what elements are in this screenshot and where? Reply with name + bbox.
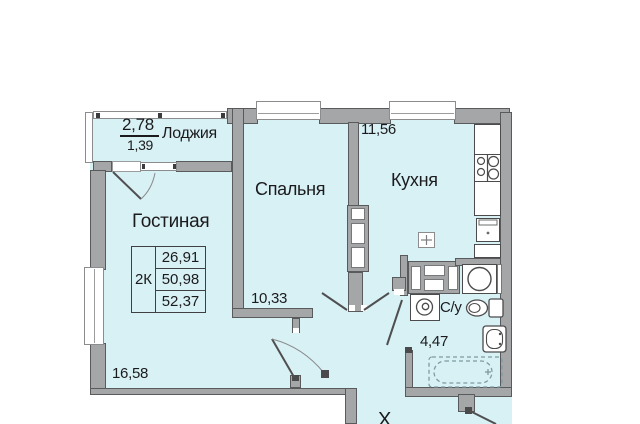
jamb-tip [405, 347, 412, 353]
duct-opening [448, 266, 458, 290]
living-label: Гостиная [132, 211, 209, 233]
kitchen-label: Кухня [391, 170, 438, 191]
wall [348, 122, 359, 207]
vent-shaft [351, 247, 365, 268]
jamb-tip [361, 305, 367, 311]
kitchen-window [389, 101, 456, 120]
loggia-label: Лоджия [162, 125, 217, 143]
jamb-tip [465, 407, 472, 414]
vent-shaft [351, 208, 365, 220]
wall [90, 343, 106, 390]
vent-box [418, 232, 435, 248]
balcony-door-opening [112, 161, 141, 172]
balcony-window [140, 162, 177, 171]
water-heater [410, 294, 440, 321]
vent-shaft [351, 223, 365, 244]
kitchen-counter [474, 244, 501, 258]
loggia-area-reduced: 1,39 [127, 137, 153, 153]
jamb-tip [394, 289, 404, 295]
wall [500, 112, 512, 397]
hall-label: Х [378, 409, 391, 424]
counter-edge [497, 264, 502, 294]
living-window [84, 267, 104, 345]
jamb-tip [292, 375, 299, 381]
jamb-tip [349, 305, 355, 311]
bathroom-area: 4,47 [420, 333, 448, 350]
wall [232, 308, 313, 318]
floor-plan: 2,78 1,39 Лоджия Спальня 10,33 Кухня 11,… [0, 0, 640, 424]
bedroom-area: 10,33 [251, 290, 287, 307]
duct-opening [424, 265, 445, 276]
kitchen-sink-unit [476, 218, 500, 242]
loggia-side-wall [85, 112, 93, 163]
wall [232, 108, 244, 318]
total-with-loggia-value: 52,37 [156, 291, 205, 312]
duct-opening [411, 266, 421, 290]
area-summary-table: 2К 26,91 50,98 52,37 [131, 246, 206, 313]
loggia-glazing [93, 111, 227, 119]
living-area-value: 26,91 [156, 247, 205, 269]
bedroom-label: Спальня [255, 179, 325, 200]
duct-opening [424, 279, 444, 291]
total-area-value: 50,98 [156, 269, 205, 291]
apartment-type: 2К [132, 247, 156, 312]
bedroom-window [256, 101, 321, 120]
bathroom-label: С/у [440, 299, 462, 316]
stove [474, 154, 501, 182]
loggia-area-full: 2,78 [122, 115, 154, 135]
kitchen-counter [474, 181, 501, 216]
kitchen-area: 11,56 [361, 121, 396, 138]
wall [90, 170, 106, 270]
wall [345, 388, 357, 424]
washing-machine [462, 264, 497, 294]
living-area: 16,58 [112, 365, 148, 382]
wall [176, 161, 232, 172]
jamb-tip [293, 328, 299, 333]
kitchen-counter [474, 124, 501, 155]
wall [90, 388, 357, 395]
